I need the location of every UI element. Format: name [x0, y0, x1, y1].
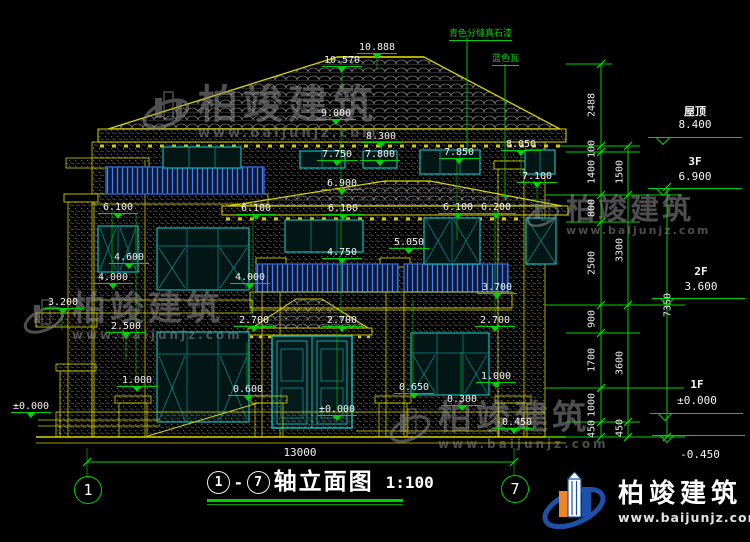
level-symbol [652, 298, 745, 299]
title-axis-right: 7 [247, 471, 270, 494]
brand-name: 柏竣建筑 [618, 479, 750, 510]
dimension-value: 800 [587, 199, 598, 217]
level-elevation: ±0.000 [677, 394, 717, 407]
material-label-stone-paint: 青色分缝真石漆 [449, 26, 512, 41]
level-name: 1F [690, 378, 703, 391]
level-elevation: 8.400 [678, 118, 711, 131]
title-scale: 1:100 [386, 473, 434, 492]
material-label-blue-tile: 蓝色瓦 [492, 51, 519, 66]
dimension-value: 3600 [615, 351, 626, 375]
title-axis-left: 1 [207, 471, 230, 494]
dimension-value: 100 [587, 140, 598, 158]
elevation-drawing [0, 0, 750, 542]
axis-bubble-1: 1 [74, 476, 102, 504]
dimension-value: 450 [587, 420, 598, 438]
level-elevation: 6.900 [678, 170, 711, 183]
level-name: 3F [688, 155, 701, 168]
dimension-value: 1400 [587, 160, 598, 184]
level-symbol [652, 435, 745, 436]
cad-elevation-screenshot: 柏竣建筑 www.baijunjz.com 柏竣建筑 www.baijunjz.… [0, 0, 750, 542]
drawing-title: 1 - 7 轴立面图 1:100 [207, 471, 434, 494]
level-symbol [650, 413, 743, 414]
level-elevation: -0.450 [680, 448, 720, 461]
brand-block: 柏竣建筑 www.baijunjz.com [534, 466, 750, 538]
brand-logo-icon [534, 466, 614, 538]
title-text: 轴立面图 [274, 471, 374, 494]
dimension-value: 3300 [615, 238, 626, 262]
level-symbol [648, 137, 742, 138]
dimension-value: 1700 [587, 348, 598, 372]
level-name: 2F [694, 265, 707, 278]
span-dimension: 13000 [283, 446, 316, 459]
brand-url: www.baijunjz.com [618, 510, 750, 525]
dimension-value: 450 [615, 419, 626, 437]
dimension-value: 2488 [587, 93, 598, 117]
level-elevation: 3.600 [684, 280, 717, 293]
axis-bubble-7: 7 [501, 475, 529, 503]
dimension-value: 1000 [587, 393, 598, 417]
title-underline [207, 499, 403, 502]
dimension-value: 900 [587, 310, 598, 328]
level-symbol [648, 188, 742, 189]
dimension-value: 2500 [587, 251, 598, 275]
title-dash: - [235, 473, 242, 492]
level-name: 屋顶 [684, 103, 706, 119]
title-underline2 [207, 504, 403, 505]
dimension-value: 1500 [615, 160, 626, 184]
